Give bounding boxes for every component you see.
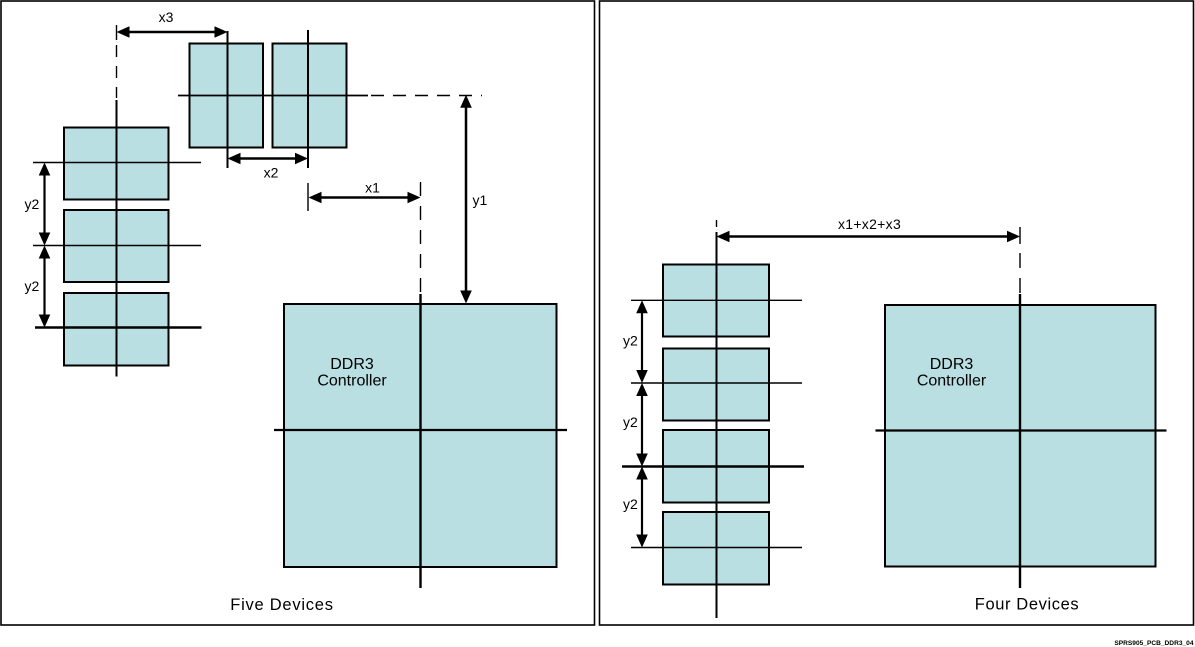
svg-text:y2: y2 bbox=[623, 333, 638, 349]
svg-text:y2: y2 bbox=[623, 496, 638, 512]
svg-text:SPRS905_PCB_DDR3_04: SPRS905_PCB_DDR3_04 bbox=[1114, 640, 1193, 647]
svg-text:DDR3: DDR3 bbox=[930, 356, 974, 373]
svg-text:y2: y2 bbox=[623, 414, 638, 430]
svg-text:y1: y1 bbox=[473, 192, 488, 208]
svg-text:Controller: Controller bbox=[317, 373, 387, 390]
svg-text:DDR3: DDR3 bbox=[330, 356, 374, 373]
svg-text:y2: y2 bbox=[25, 278, 40, 294]
svg-text:Four Devices: Four Devices bbox=[975, 596, 1079, 614]
svg-text:x1+x2+x3: x1+x2+x3 bbox=[838, 216, 901, 232]
svg-text:x3: x3 bbox=[159, 9, 174, 25]
svg-text:Controller: Controller bbox=[917, 373, 987, 390]
svg-text:x2: x2 bbox=[264, 165, 279, 181]
svg-text:Five Devices: Five Devices bbox=[230, 596, 333, 614]
svg-text:y2: y2 bbox=[25, 196, 40, 212]
svg-text:x1: x1 bbox=[365, 180, 380, 196]
